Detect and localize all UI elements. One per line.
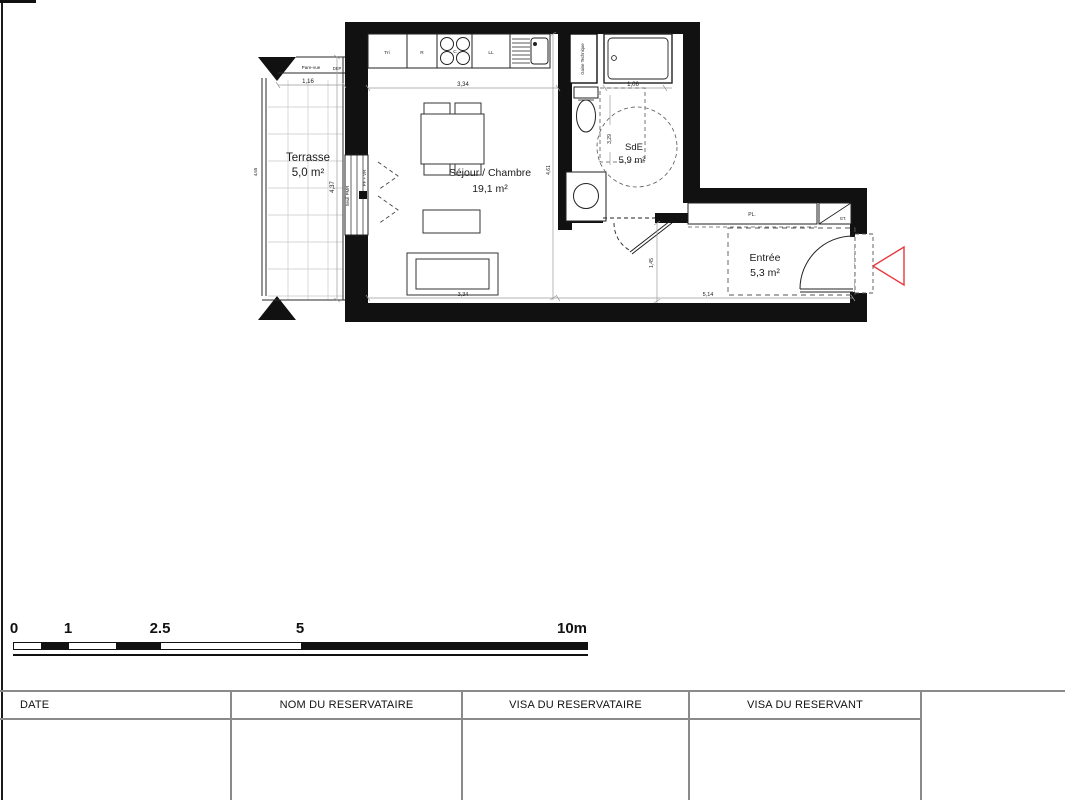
- room-entree-name: Entrée: [750, 252, 781, 264]
- table-header-date: DATE: [0, 692, 230, 720]
- table-header-nom-reservataire: NOM DU RESERVATAIRE: [232, 692, 461, 720]
- floor-plan: Pare-vue DEP 1,16 4,37 4,65 Terrasse 5,0…: [0, 0, 1065, 650]
- room-sejour-name: Séjour / Chambre: [449, 167, 531, 179]
- window-opening-chevrons: [378, 162, 398, 224]
- sde-door: [603, 218, 672, 254]
- room-entree-area: 5,3 m²: [750, 267, 780, 279]
- kitchen-unit-tri: Tri: [384, 50, 389, 56]
- dining-table: [421, 103, 484, 175]
- terrasse-corner-top-icon: [258, 57, 296, 81]
- closet-gt: GT.: [819, 203, 851, 224]
- dim-entree-depth: 1,45: [649, 258, 655, 268]
- scale-label-0: 0: [10, 620, 18, 637]
- window-type-label: PF + VR: [362, 170, 367, 187]
- entree-zone: [728, 228, 855, 295]
- table-col-visa-reservant: VISA DU RESERVANT: [690, 692, 922, 800]
- dim-sejour-width: 3,34: [458, 292, 469, 298]
- room-terrasse-name: Terrasse: [286, 152, 330, 164]
- table-col-empty: [922, 692, 1065, 800]
- floor-plan-sheet: Pare-vue DEP 1,16 4,37 4,65 Terrasse 5,0…: [0, 0, 1065, 800]
- kitchen-unit-r: R: [420, 50, 424, 56]
- gaine-technique: Gaine Technique: [570, 34, 597, 83]
- wc-toilet: [574, 87, 598, 132]
- scale-bar: 0 1 2.5 5 10m: [0, 618, 620, 663]
- closet-gt-label: GT.: [840, 216, 847, 221]
- entrance-arrow-icon: [873, 247, 904, 285]
- closet-pl-label: PL.: [748, 212, 756, 218]
- table-col-visa-reservataire: VISA DU RESERVATAIRE: [463, 692, 690, 800]
- kitchen-unit-c: C: [453, 49, 457, 55]
- dim-sde-length: 3,29: [607, 134, 613, 144]
- scale-label-2-5: 2.5: [150, 620, 171, 637]
- dim-kitchen-width: 3,34: [457, 82, 469, 88]
- scale-bar-segments: [13, 642, 588, 650]
- closet-pl: PL.: [688, 203, 817, 227]
- washbasin-unit: [566, 172, 606, 221]
- kitchen-counter: [368, 34, 550, 68]
- shower: [604, 34, 672, 83]
- scale-label-1: 1: [64, 620, 72, 637]
- scale-label-10m: 10m: [557, 620, 587, 637]
- scale-bar-underline: [13, 654, 588, 656]
- table-col-date: DATE: [0, 692, 232, 800]
- room-sde-name: SdE: [625, 142, 643, 153]
- table-header-visa-reservant: VISA DU RESERVANT: [690, 692, 920, 720]
- scale-label-5: 5: [296, 620, 304, 637]
- sofa-bed: [407, 253, 498, 295]
- room-sde-area: 5,9 m²: [619, 155, 646, 166]
- gaine-technique-label: Gaine Technique: [580, 43, 585, 75]
- entrance-threshold: [855, 234, 873, 293]
- room-sejour-area: 19,1 m²: [472, 183, 508, 195]
- pare-vue-label: Pare-vue: [302, 65, 321, 70]
- room-terrasse-area: 5,0 m²: [292, 167, 325, 179]
- seuil-pmr-label: Seuil PMR: [345, 186, 350, 207]
- kitchen-unit-ll: LL: [488, 50, 494, 56]
- table-col-nom-reservataire: NOM DU RESERVATAIRE: [232, 692, 463, 800]
- dim-terrasse-rail: 4,65: [253, 167, 258, 176]
- low-table: [423, 210, 480, 233]
- table-header-visa-reservataire: VISA DU RESERVATAIRE: [463, 692, 688, 720]
- top-dim-lines: [366, 85, 672, 91]
- window-pf-vr: Seuil PMR PF + VR: [345, 155, 368, 235]
- title-block-table: DATE NOM DU RESERVATAIRE VISA DU RESERVA…: [0, 690, 1065, 800]
- entrance-door: [800, 236, 853, 292]
- dim-entree-width: 5,14: [703, 292, 714, 298]
- dim-terrasse-length: 4,37: [330, 181, 336, 193]
- dim-shower-width: 1,06: [627, 82, 639, 88]
- dim-sejour-length: 4,61: [546, 165, 552, 175]
- dim-pare-vue-width: 1,16: [302, 79, 314, 85]
